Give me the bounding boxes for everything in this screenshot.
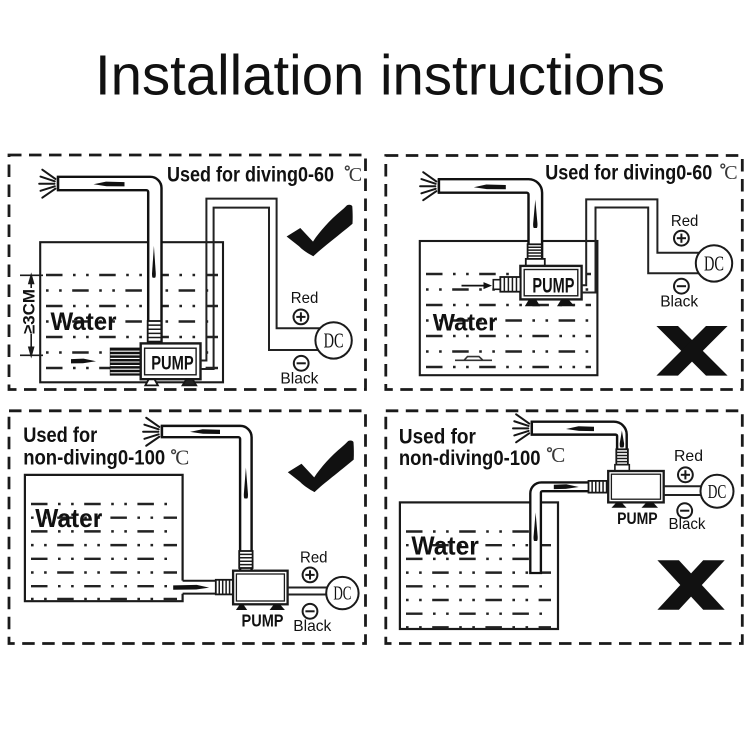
svg-text:C: C [724,162,737,184]
svg-text:≥3CM: ≥3CM [20,289,39,334]
svg-text:Red: Red [291,290,319,307]
svg-text:Used for diving0-60: Used for diving0-60 [545,162,712,185]
svg-text:Water: Water [35,503,102,533]
svg-text:Black: Black [293,618,332,635]
svg-text:non-diving0-100: non-diving0-100 [399,447,541,470]
svg-text:C: C [175,445,189,469]
svg-text:Black: Black [669,516,707,533]
svg-text:PUMP: PUMP [532,275,574,298]
svg-text:DC: DC [324,328,344,352]
svg-text:Used for: Used for [23,424,97,447]
svg-text:Installation instructions: Installation instructions [95,44,665,107]
svg-text:C: C [551,443,565,467]
svg-text:C: C [349,164,362,186]
svg-text:PUMP: PUMP [617,510,658,528]
svg-text:Red: Red [674,448,703,465]
svg-text:non-diving0-100: non-diving0-100 [23,446,165,469]
svg-text:Black: Black [280,370,319,387]
svg-text:Used for diving0-60: Used for diving0-60 [167,164,334,187]
svg-text:Used for: Used for [399,425,476,448]
svg-text:Water: Water [433,309,498,336]
svg-text:Black: Black [660,293,699,310]
svg-text:Water: Water [51,308,117,336]
svg-text:PUMP: PUMP [151,354,194,375]
svg-text:DC: DC [708,481,727,503]
svg-text:DC: DC [333,584,351,605]
svg-text:DC: DC [704,251,724,275]
svg-text:Red: Red [300,549,328,566]
svg-text:PUMP: PUMP [242,611,284,631]
svg-text:Water: Water [411,530,479,560]
svg-text:Red: Red [671,213,699,230]
